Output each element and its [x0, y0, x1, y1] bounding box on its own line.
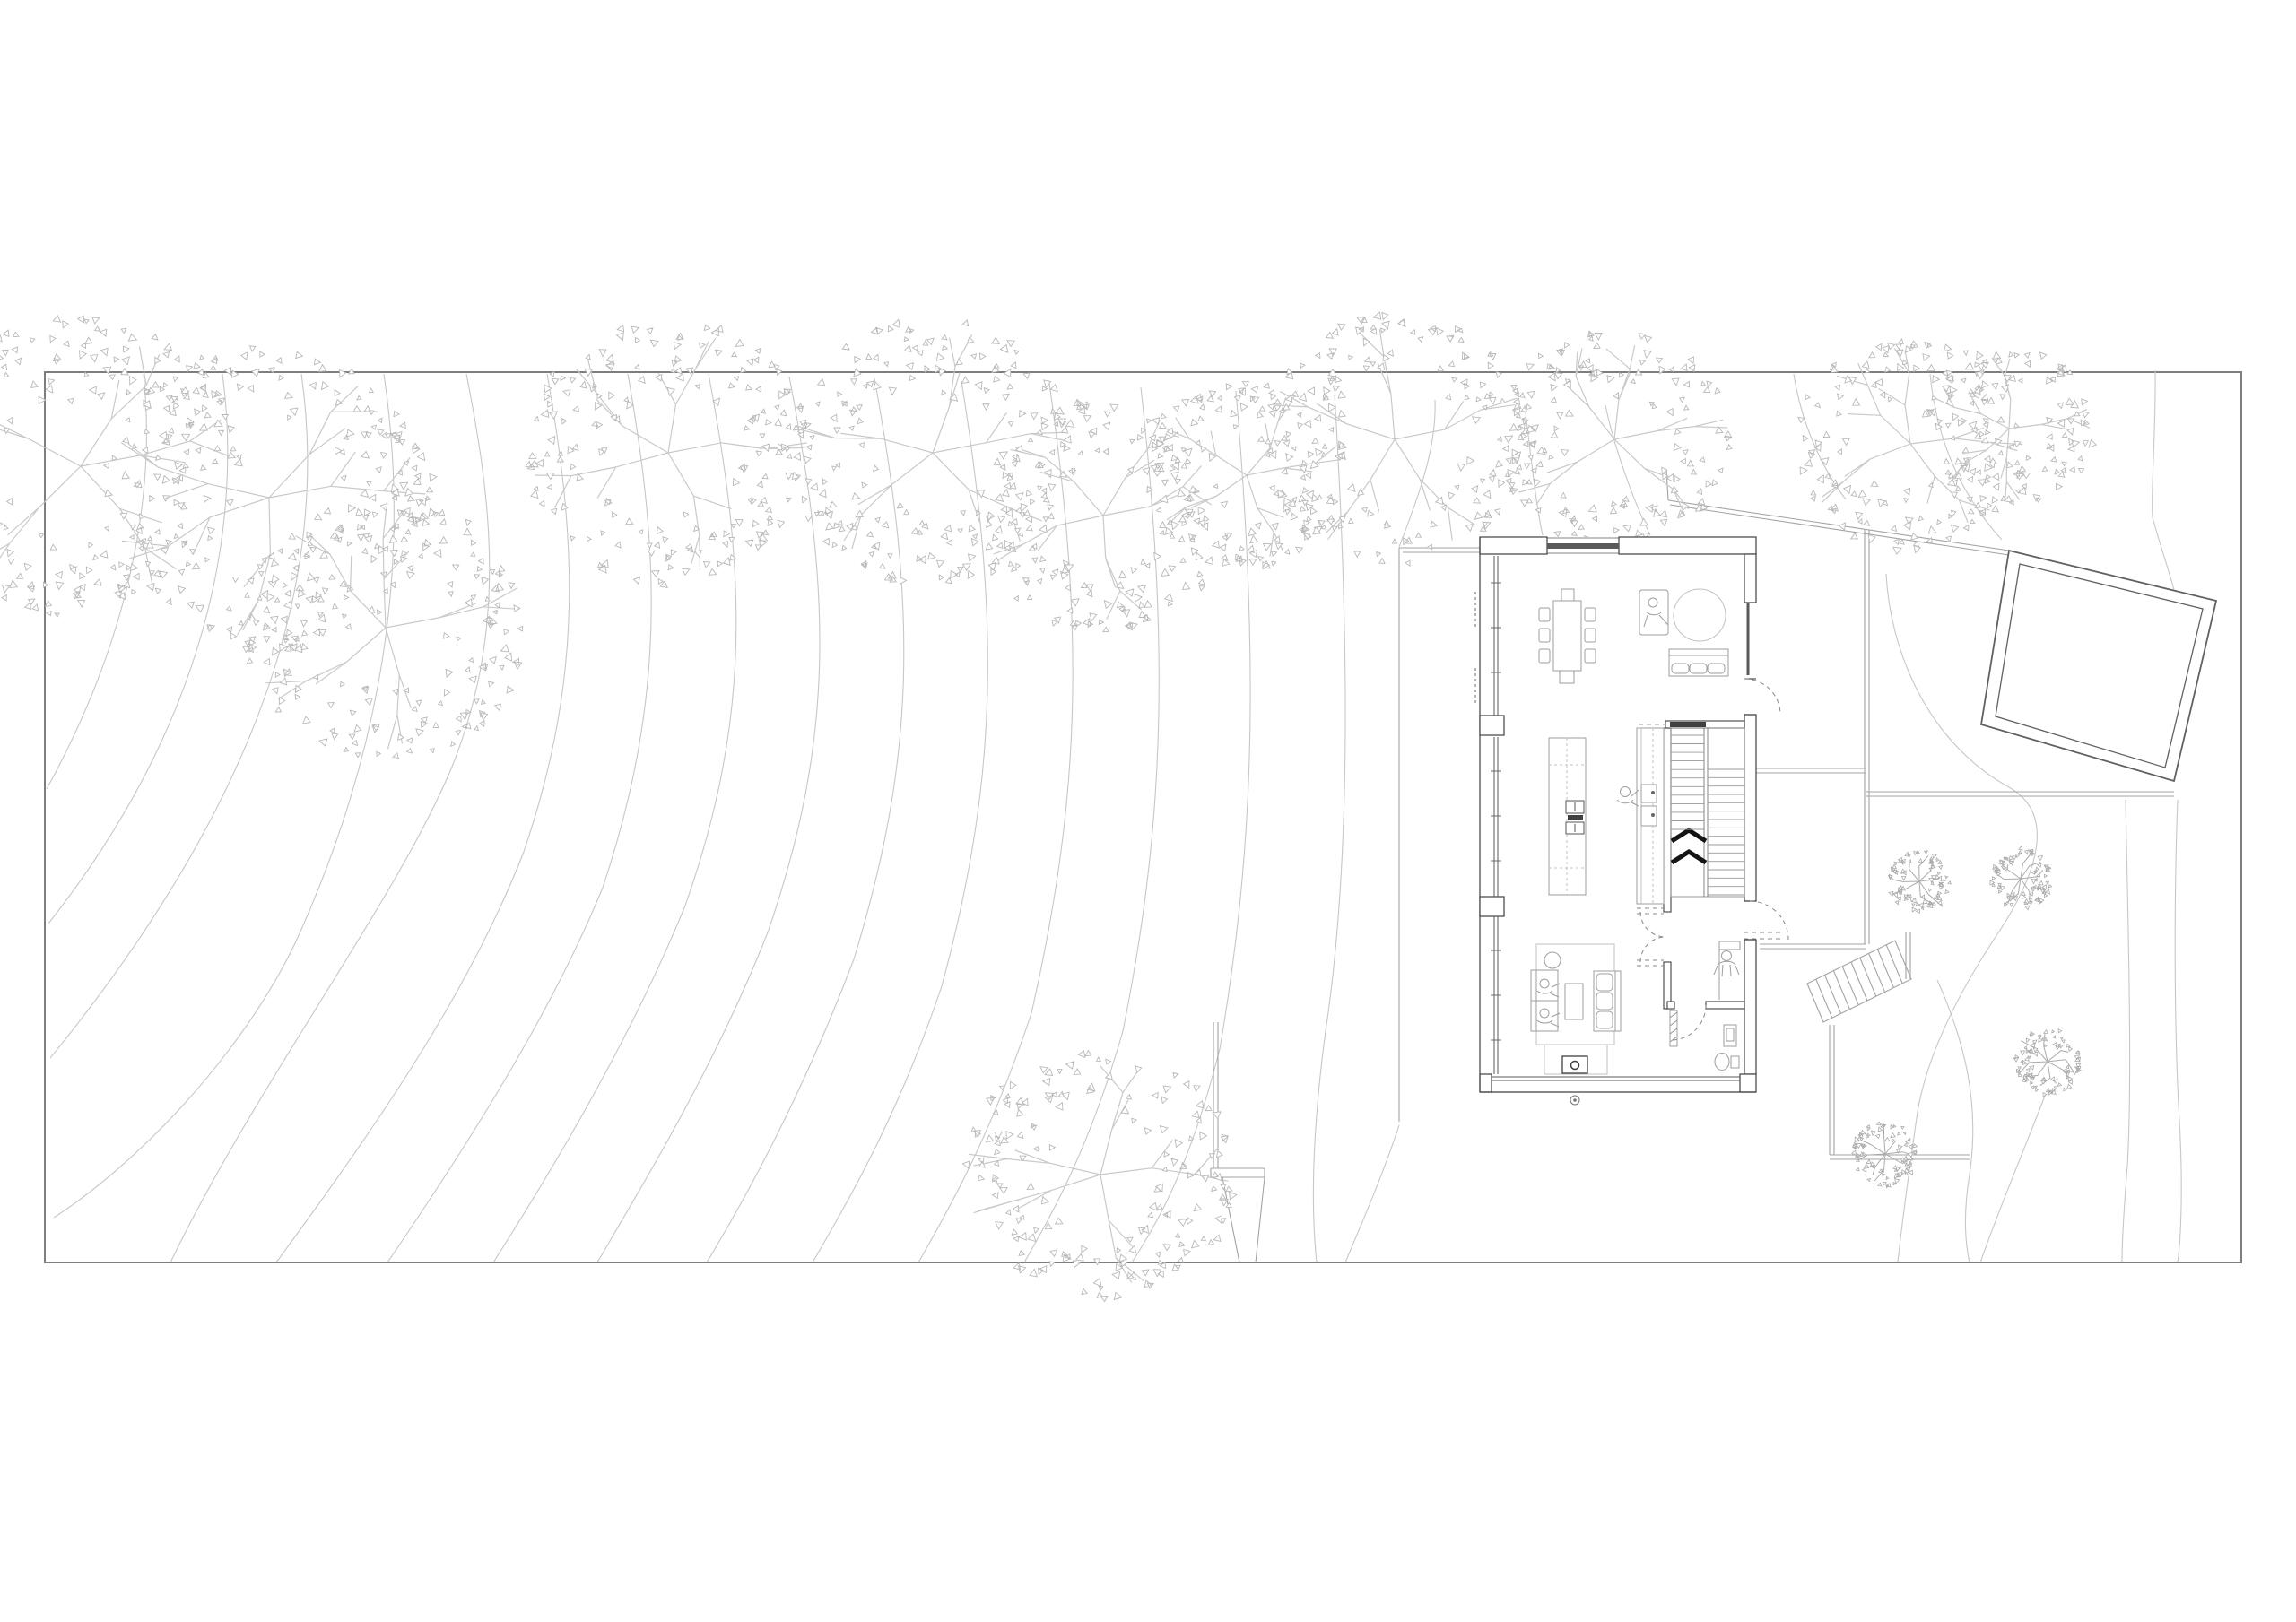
east-wall-upper — [1744, 554, 1756, 603]
contour-line — [707, 378, 904, 1262]
dining-chair — [1585, 649, 1596, 663]
contour-line — [918, 384, 1073, 1262]
contour-line — [1313, 395, 1345, 1262]
dining-table — [1553, 601, 1581, 671]
exterior-stair-tread — [1860, 958, 1876, 996]
exterior-stair — [1807, 941, 1911, 1022]
east-wall-mid — [1744, 715, 1756, 901]
contour-line — [493, 374, 736, 1262]
partition-hall-upper — [1664, 728, 1671, 912]
exterior-stair-tread — [1851, 962, 1867, 1001]
side-table — [1544, 952, 1561, 968]
exterior-stair-tread — [1816, 979, 1832, 1018]
contour-line — [597, 377, 820, 1262]
partition-wc — [1706, 1002, 1744, 1009]
exterior-stair-tread — [1833, 971, 1849, 1010]
tree-branches — [535, 338, 806, 570]
dining-end-seat-north — [1561, 589, 1574, 601]
tree-round — [2013, 1029, 2081, 1097]
contour-lines — [47, 370, 2181, 1262]
west-wall-pier-1 — [1480, 716, 1504, 735]
exterior-stair-tread — [1869, 953, 1885, 992]
vegetation — [0, 312, 2096, 1302]
contour-line — [170, 374, 490, 1262]
exterior-stair-tread — [1825, 975, 1841, 1013]
south-wall-east-pier — [1740, 1074, 1756, 1092]
site-plan-page — [0, 0, 2296, 1622]
tree-branches — [1519, 346, 1727, 516]
tree-round — [1990, 846, 2052, 910]
north-window-glazing — [1547, 543, 1619, 549]
house-floor-plan — [1475, 537, 1788, 1105]
contour-line — [1980, 1096, 2045, 1262]
cooktop — [1566, 801, 1584, 834]
downspout-dot — [1573, 1098, 1577, 1102]
dining-end-seat-south — [1560, 671, 1574, 683]
coffee-table — [1565, 984, 1583, 1019]
sofa-west — [1531, 970, 1560, 1031]
chaise-lounge — [1639, 590, 1668, 635]
west-wall-pier-2 — [1480, 897, 1504, 916]
wc-sink-basin — [1726, 1028, 1734, 1041]
contour-line — [1937, 980, 1973, 1262]
tree-branching — [248, 495, 523, 759]
tree-branches — [1822, 349, 2022, 523]
contour-line — [387, 374, 651, 1262]
exterior-stair-tread — [1877, 950, 1893, 988]
exterior-stair-tread — [1842, 967, 1858, 1005]
contour-line — [1605, 405, 1650, 535]
tree-branching — [0, 316, 242, 617]
dining-chair — [1585, 629, 1596, 642]
tree-branching — [787, 319, 1074, 584]
dining-chair — [1539, 649, 1550, 663]
tree-branching — [1923, 351, 2097, 507]
pass-through-hatch — [1670, 722, 1706, 727]
dining-chair — [1585, 608, 1596, 621]
dining-chair — [1539, 608, 1550, 621]
contour-line — [54, 374, 394, 1218]
sofa-east — [1594, 971, 1621, 1031]
contour-line — [2175, 800, 2181, 1262]
sofa-north — [1669, 649, 1728, 676]
contour-line — [2152, 370, 2174, 590]
hall-shelf — [1719, 941, 1740, 950]
contour-line — [813, 381, 987, 1262]
retaining-wall — [1256, 1177, 1265, 1262]
east-wall-lower — [1744, 940, 1756, 1074]
north-wall-left — [1480, 537, 1547, 554]
north-wall-right — [1619, 537, 1756, 554]
tree-round — [1889, 850, 1952, 913]
tree-branching — [977, 399, 1228, 631]
wc-door-post — [1667, 1002, 1674, 1009]
site-plan-drawing — [0, 0, 2296, 1622]
wc-toilet-bowl — [1715, 1054, 1729, 1071]
contour-line — [1345, 1125, 1399, 1262]
site-boundary — [45, 372, 2241, 1262]
contour-line — [276, 374, 570, 1262]
pool-terrace — [1981, 551, 2216, 781]
south-wall-west-pier — [1480, 1074, 1492, 1092]
tree-branching — [1258, 312, 1527, 566]
exterior-stair-tread — [1886, 945, 1902, 984]
contour-line — [1399, 400, 1435, 547]
tree-branching — [1498, 331, 1732, 545]
tree-leaves — [0, 316, 242, 617]
dining-chair — [1539, 629, 1550, 642]
wc-toilet-tank — [1731, 1056, 1739, 1068]
contour-line — [2122, 800, 2130, 1262]
tree-leaves — [787, 319, 1074, 584]
